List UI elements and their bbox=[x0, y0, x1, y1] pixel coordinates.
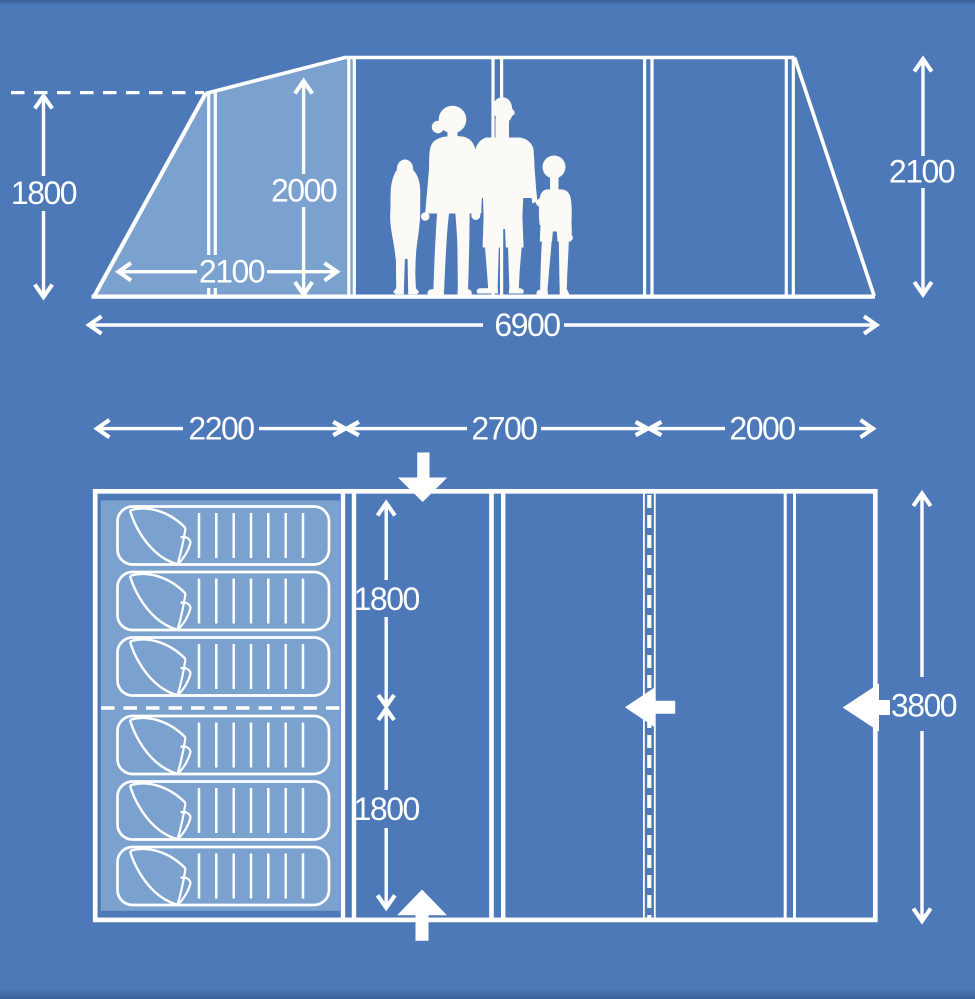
svg-text:1800: 1800 bbox=[354, 791, 420, 827]
svg-text:1800: 1800 bbox=[11, 175, 77, 211]
svg-text:2000: 2000 bbox=[271, 173, 337, 209]
svg-text:2100: 2100 bbox=[199, 254, 265, 290]
svg-text:3800: 3800 bbox=[891, 688, 957, 724]
svg-text:2100: 2100 bbox=[889, 153, 955, 189]
svg-text:6900: 6900 bbox=[494, 307, 560, 343]
svg-text:1800: 1800 bbox=[354, 581, 420, 617]
svg-text:2700: 2700 bbox=[471, 411, 537, 447]
svg-text:2200: 2200 bbox=[188, 411, 254, 447]
svg-text:2000: 2000 bbox=[729, 411, 795, 447]
